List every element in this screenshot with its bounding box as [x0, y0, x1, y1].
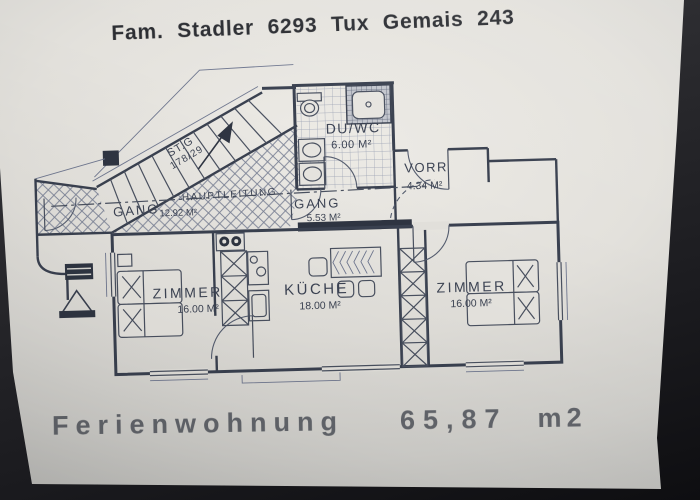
photo-of-floorplan: { "photo": { "title": "Fam. Stadler 6293…	[0, 0, 700, 500]
bedroom-left: ZIMMER 16.00 M²	[117, 252, 224, 338]
kitchen-area: 18.00 M²	[299, 299, 341, 312]
kitchen-name: KÜCHE	[284, 279, 349, 299]
bedroom-right-door	[413, 221, 450, 262]
footer-area-value: 65,87	[400, 404, 508, 437]
stair-post	[103, 150, 119, 165]
shower-tray	[352, 91, 385, 119]
hall-main-area: 12.92 M²	[159, 207, 197, 219]
footer-area-unit: m2	[537, 402, 587, 434]
chair-3	[358, 280, 374, 296]
bathroom-name: DU/WC	[325, 119, 380, 137]
kitchen: KÜCHE 18.00 M²	[283, 247, 382, 313]
hall-small-area: 5.53 M²	[307, 212, 342, 224]
kitchen-fixtures	[216, 232, 270, 325]
chair-1	[309, 258, 327, 276]
nightstand	[118, 254, 132, 266]
bedroom-left-name: ZIMMER	[152, 284, 223, 302]
terrace-sill	[242, 372, 340, 383]
bed-left-lower	[118, 303, 183, 338]
footer-label: Ferienwohnung	[52, 406, 344, 442]
bedroom-right-area: 16.00 M²	[450, 297, 492, 310]
bedroom-right: ZIMMER 16.00 M²	[436, 260, 540, 327]
shaft-symbol	[65, 263, 93, 280]
wc	[300, 100, 318, 116]
bedroom-right-name: ZIMMER	[436, 278, 507, 296]
bathroom-area: 6.00 M²	[331, 138, 372, 151]
stair-label: ST.G 178/29	[162, 133, 206, 172]
hall-small-name: GANG	[294, 195, 341, 211]
vestibule-area: 4.34 M²	[407, 179, 443, 192]
photographed-plan-sheet: Fam. Stadler 6293 Tux Gemais 243	[0, 0, 700, 500]
vestibule-name: VORR	[404, 159, 448, 175]
bedroom-left-door	[210, 316, 253, 359]
plan-group: ST.G 178/29	[32, 57, 569, 389]
wardrobe-strip	[400, 248, 428, 367]
bedroom-left-area: 16.00 M²	[177, 303, 219, 316]
